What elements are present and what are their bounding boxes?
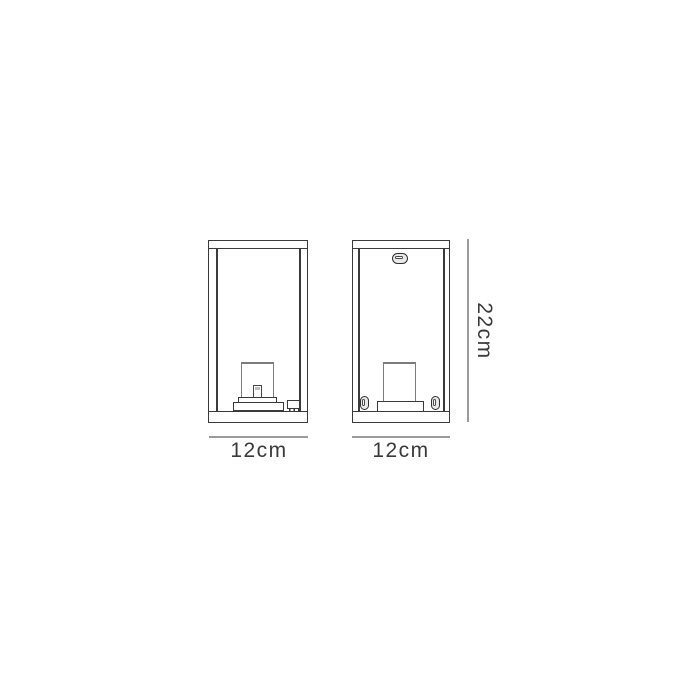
front-view (208, 240, 308, 423)
rear-view (352, 240, 450, 423)
width-label-rear: 12cm (372, 439, 429, 463)
rear-bottom-rail (353, 411, 449, 422)
front-lamp-socket (241, 362, 274, 399)
front-terminal-block (287, 400, 300, 409)
front-top-rail (209, 241, 307, 249)
front-socket-notch-shading (255, 387, 260, 390)
front-left-post (216, 249, 218, 412)
rear-left-post (358, 249, 360, 412)
width-dimension-line-front (209, 436, 308, 438)
rear-lamp-socket (383, 362, 416, 403)
screw-slot-right-icon (431, 396, 440, 410)
keyhole-screw-slot-icon (392, 253, 408, 264)
diagram-canvas: 12cm 12cm 22cm (0, 0, 700, 700)
rear-socket-base (377, 401, 424, 412)
screw-slot-left-inner (362, 399, 365, 406)
keyhole-screw-slot-inner (395, 256, 403, 259)
screw-slot-right-inner (433, 399, 436, 406)
screw-slot-left-icon (360, 396, 369, 410)
height-label: 22cm (472, 302, 496, 359)
width-label-front: 12cm (230, 439, 287, 463)
rear-right-post (443, 249, 445, 412)
width-dimension-line-rear (352, 436, 450, 438)
front-bottom-rail (209, 411, 307, 422)
front-right-post (299, 249, 301, 412)
rear-top-rail (353, 241, 449, 249)
height-dimension-line (467, 239, 469, 422)
front-terminal-pins (289, 409, 299, 412)
front-socket-base (233, 402, 284, 411)
